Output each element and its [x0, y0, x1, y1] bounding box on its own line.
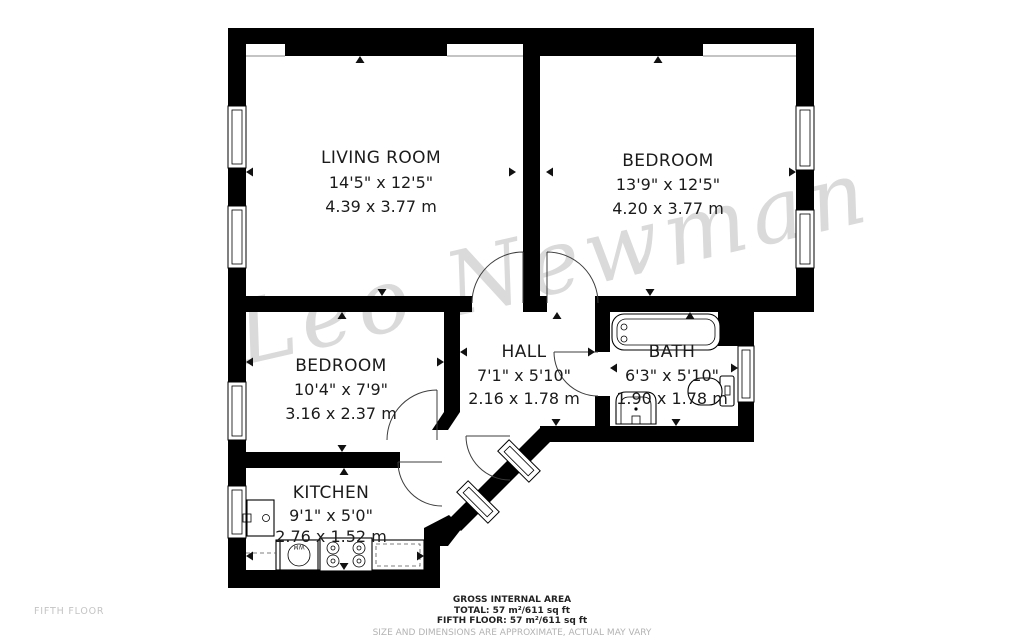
room-metric: 4.20 x 3.77 m: [612, 199, 724, 218]
window-bedroom-1b: [796, 210, 814, 268]
total-area: TOTAL: 57 m²/611 sq ft: [0, 606, 1024, 617]
gross-internal-area-title: GROSS INTERNAL AREA: [0, 595, 1024, 606]
window-living-room-2: [228, 206, 246, 268]
room-imperial: 10'4" x 7'9": [294, 380, 388, 399]
floor-area: FIFTH FLOOR: 57 m²/611 sq ft: [0, 616, 1024, 627]
room-bath: BATH 6'3" x 5'10" 1.90 x 1.78 m: [616, 342, 728, 408]
room-bedroom-1: BEDROOM 13'9" x 12'5" 4.20 x 3.77 m: [612, 151, 724, 218]
room-metric: 2.76 x 1.52 m: [275, 527, 387, 546]
room-name: KITCHEN: [293, 483, 369, 503]
window-bath: [738, 346, 754, 402]
room-name: BEDROOM: [622, 151, 714, 171]
watermark-text: Leo Newman: [224, 139, 881, 386]
room-imperial: 9'1" x 5'0": [289, 506, 373, 525]
room-metric: 2.16 x 1.78 m: [468, 389, 580, 408]
room-metric: 4.39 x 3.77 m: [325, 197, 437, 216]
room-imperial: 13'9" x 12'5": [616, 175, 720, 194]
window-kitchen: [228, 486, 246, 538]
floor-label: FIFTH FLOOR: [34, 606, 104, 617]
room-name: LIVING ROOM: [321, 148, 441, 168]
room-imperial: 7'1" x 5'10": [477, 366, 571, 385]
footer: GROSS INTERNAL AREA TOTAL: 57 m²/611 sq …: [0, 595, 1024, 638]
window-bedroom-2: [228, 382, 246, 440]
room-bedroom-2: BEDROOM 10'4" x 7'9" 3.16 x 2.37 m: [285, 356, 397, 423]
room-metric: 1.90 x 1.78 m: [616, 389, 728, 408]
room-imperial: 6'3" x 5'10": [625, 366, 719, 385]
room-kitchen: KITCHEN 9'1" x 5'0" 2.76 x 1.52 m: [275, 483, 387, 546]
room-imperial: 14'5" x 12'5": [329, 173, 433, 192]
floorplan-page: { "watermark": "Leo Newman", "floor_labe…: [0, 0, 1024, 640]
room-metric: 3.16 x 2.37 m: [285, 404, 397, 423]
door-arc-kitchen: [398, 462, 442, 506]
window-living-room-1: [228, 106, 246, 168]
room-living-room: LIVING ROOM 14'5" x 12'5" 4.39 x 3.77 m: [321, 148, 441, 216]
window-bedroom-1a: [796, 106, 814, 170]
room-name: HALL: [502, 342, 547, 362]
floorplan-svg: Leo Newman: [0, 0, 1024, 640]
room-name: BATH: [649, 342, 696, 362]
disclaimer: SIZE AND DIMENSIONS ARE APPROXIMATE, ACT…: [0, 628, 1024, 639]
boiler-cupboard-icon: [243, 500, 274, 536]
room-name: BEDROOM: [295, 356, 387, 376]
